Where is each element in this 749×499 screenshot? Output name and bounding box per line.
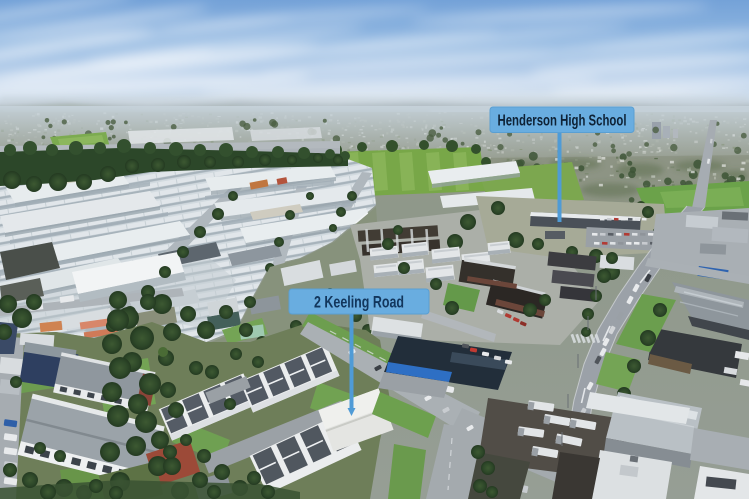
svg-text:Henderson High School: Henderson High School	[498, 113, 627, 130]
svg-text:2 Keeling Road: 2 Keeling Road	[314, 294, 404, 312]
